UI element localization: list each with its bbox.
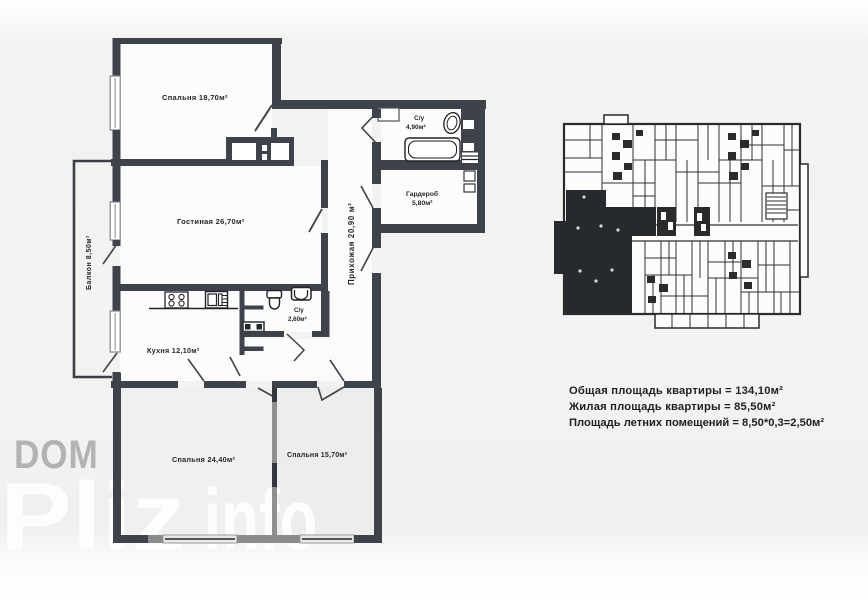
svg-text:Общая площадь квартиры = 134,1: Общая площадь квартиры = 134,10м²: [569, 385, 783, 397]
svg-text:Спальня 24,40м²: Спальня 24,40м²: [172, 455, 236, 464]
svg-text:Гардероб: Гардероб: [406, 190, 438, 198]
svg-text:Спальня 15,70м²: Спальня 15,70м²: [287, 452, 348, 459]
svg-text:5,80м²: 5,80м²: [412, 200, 433, 207]
svg-text:4,90м²: 4,90м²: [406, 124, 426, 131]
svg-text:2,60м²: 2,60м²: [288, 316, 307, 323]
svg-text:Кухня 12,10м²: Кухня 12,10м²: [147, 346, 200, 355]
svg-text:Балкон 8,50м²: Балкон 8,50м²: [86, 235, 93, 290]
svg-text:С/у: С/у: [414, 115, 425, 122]
svg-text:С/у: С/у: [294, 307, 304, 314]
svg-text:Площадь летних помещений = 8,5: Площадь летних помещений = 8,50*0,3=2,50…: [569, 417, 824, 429]
svg-text:Спальня 18,70м²: Спальня 18,70м²: [162, 93, 228, 102]
svg-text:Гостиная 26,70м²: Гостиная 26,70м²: [177, 217, 245, 226]
svg-text:Pliz: Pliz: [0, 462, 185, 569]
svg-text:Прихожая 20,90 м²: Прихожая 20,90 м²: [347, 202, 356, 285]
svg-text:Жилая площадь квартиры = 85,50: Жилая площадь квартиры = 85,50м²: [568, 401, 776, 413]
svg-text:info: info: [204, 471, 317, 567]
